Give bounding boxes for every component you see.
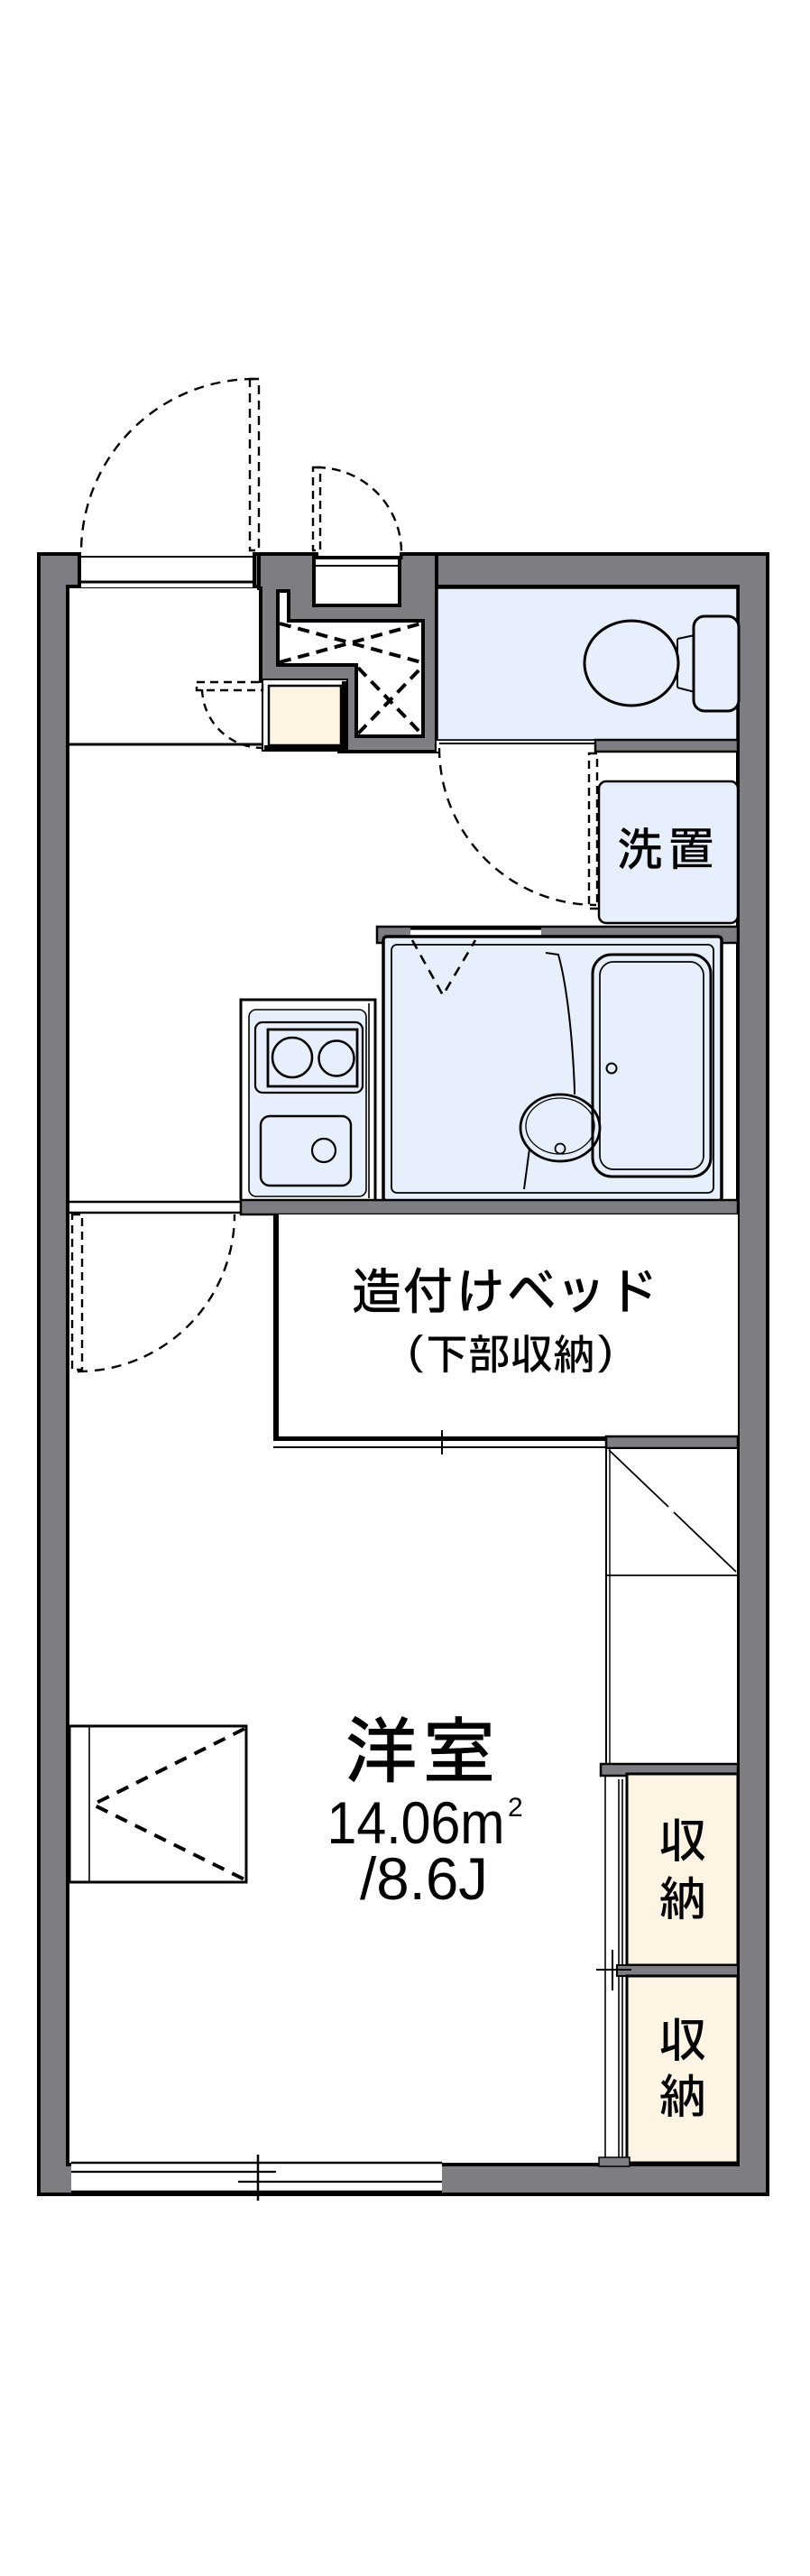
svg-text:/8.6J: /8.6J <box>360 1845 488 1912</box>
svg-text:2: 2 <box>508 1793 523 1823</box>
